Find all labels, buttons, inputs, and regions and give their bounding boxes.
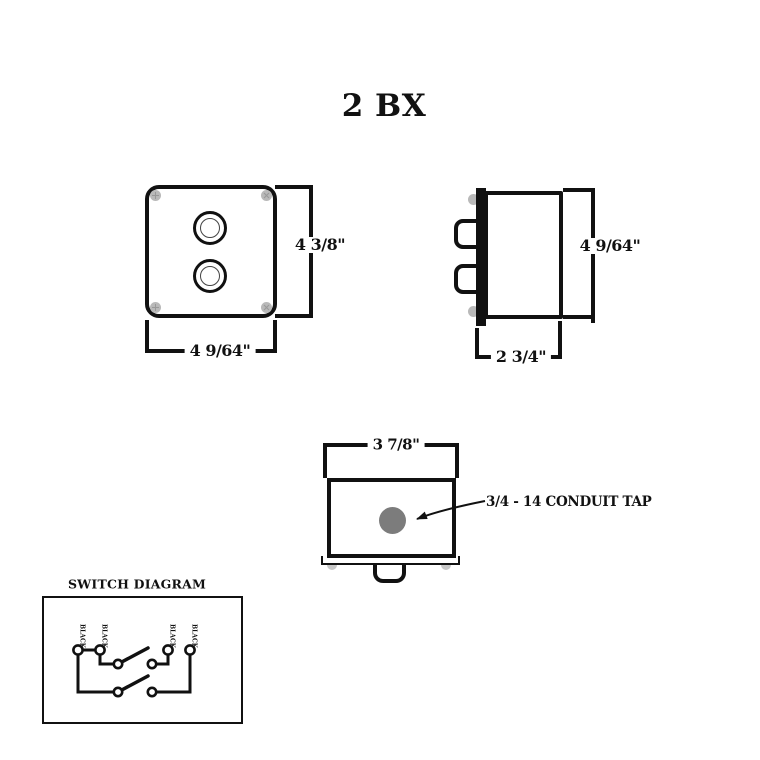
side-depth-dim-label: 2 3/4" bbox=[491, 349, 551, 365]
side-height-dim-label: 4 9/64" bbox=[575, 238, 646, 254]
screw-icon bbox=[150, 302, 161, 313]
side-depth-dim-line bbox=[558, 321, 562, 359]
bottom-width-dim-label: 3 7/8" bbox=[368, 438, 425, 453]
front-width-dim-label: 4 9/64" bbox=[185, 343, 256, 359]
pushbutton-bottom-inner bbox=[200, 266, 220, 286]
bottom-width-dim-line bbox=[455, 443, 459, 478]
button-profile-bottom-view bbox=[373, 563, 406, 583]
page-title: 2 BX bbox=[342, 88, 427, 124]
wire-terminal4 bbox=[152, 650, 190, 692]
side-height-dim-line bbox=[563, 315, 595, 319]
conduit-tap-hole bbox=[379, 507, 406, 534]
conduit-tap-label: 3/4 - 14 CONDUIT TAP bbox=[486, 494, 652, 510]
front-box-outline bbox=[145, 185, 277, 318]
pushbutton-top bbox=[193, 211, 227, 245]
wire-terminal1 bbox=[78, 650, 118, 692]
switch-contact bbox=[148, 688, 156, 696]
front-height-dim-label: 4 3/8" bbox=[290, 237, 350, 253]
front-height-dim-line bbox=[275, 185, 313, 189]
terminal-2-label: BLACK bbox=[101, 624, 108, 649]
switch-diagram-schematic: BLACK BLACK BLACK BLACK bbox=[42, 596, 243, 724]
pushbutton-top-inner bbox=[200, 218, 220, 238]
screw-tip-icon bbox=[441, 565, 451, 570]
switch-contact bbox=[114, 688, 122, 696]
conduit-arrow-line bbox=[417, 501, 485, 519]
conduit-arrow bbox=[407, 492, 489, 526]
screw-tip-icon bbox=[327, 565, 337, 570]
bottom-width-dim-line bbox=[323, 443, 327, 478]
side-box-outline bbox=[484, 191, 563, 319]
terminal-1-label: BLACK bbox=[79, 624, 86, 649]
side-height-dim-line bbox=[591, 188, 595, 323]
screw-icon bbox=[150, 190, 161, 201]
front-height-dim-line bbox=[275, 314, 313, 318]
pushbutton-bottom bbox=[193, 259, 227, 293]
drawing-canvas: 2 BX 4 3/8" 4 9/64" bbox=[0, 0, 760, 760]
switch-contact bbox=[114, 660, 122, 668]
terminal-4-label: BLACK bbox=[191, 624, 198, 649]
terminal-3-label: BLACK bbox=[169, 624, 176, 649]
switch-contact bbox=[148, 660, 156, 668]
switch-diagram-title: SWITCH DIAGRAM bbox=[68, 577, 206, 592]
